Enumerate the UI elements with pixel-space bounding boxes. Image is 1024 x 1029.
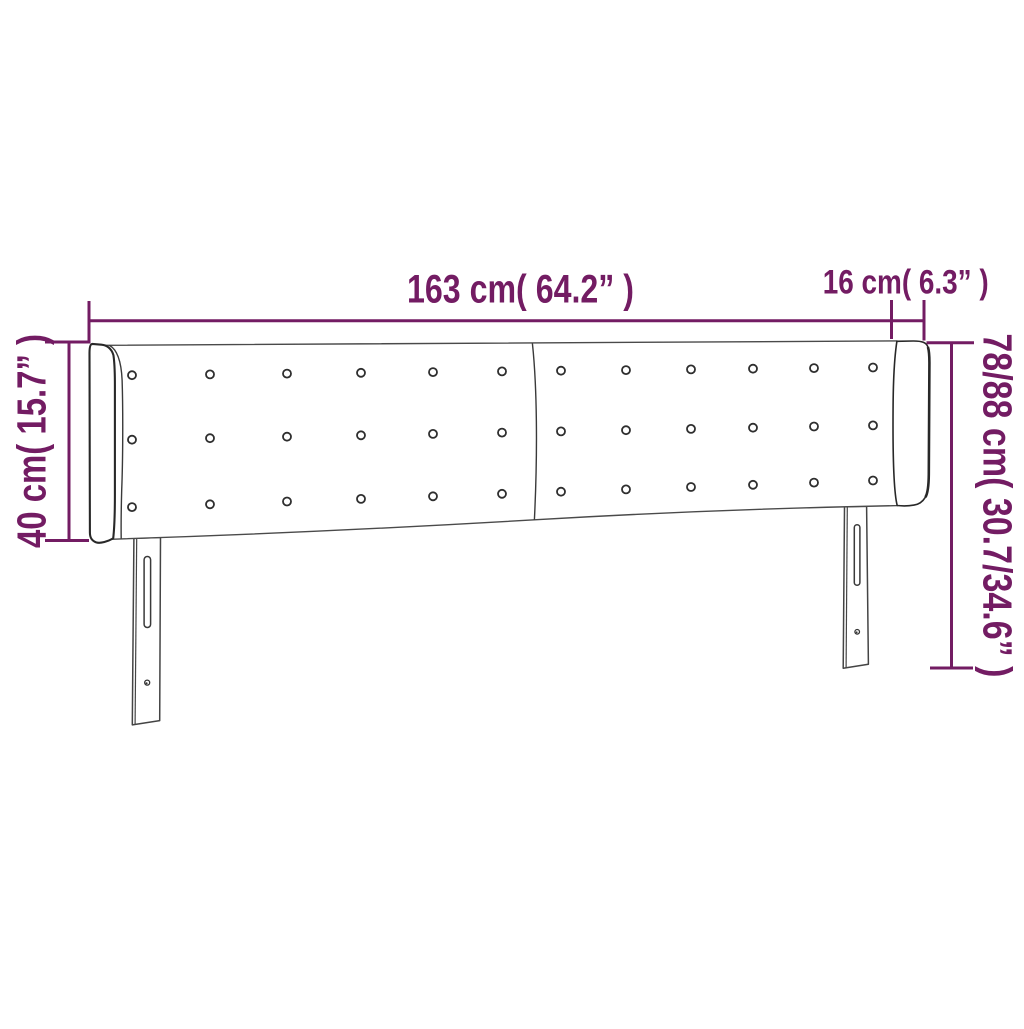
svg-text:163 cm( 64.2” ): 163 cm( 64.2” ) <box>407 267 634 311</box>
svg-text:16 cm( 6.3” ): 16 cm( 6.3” ) <box>823 264 989 302</box>
svg-text:40 cm( 15.7” ): 40 cm( 15.7” ) <box>9 334 55 548</box>
svg-text:78/88 cm( 30.7/34.6” ): 78/88 cm( 30.7/34.6” ) <box>975 333 1021 677</box>
